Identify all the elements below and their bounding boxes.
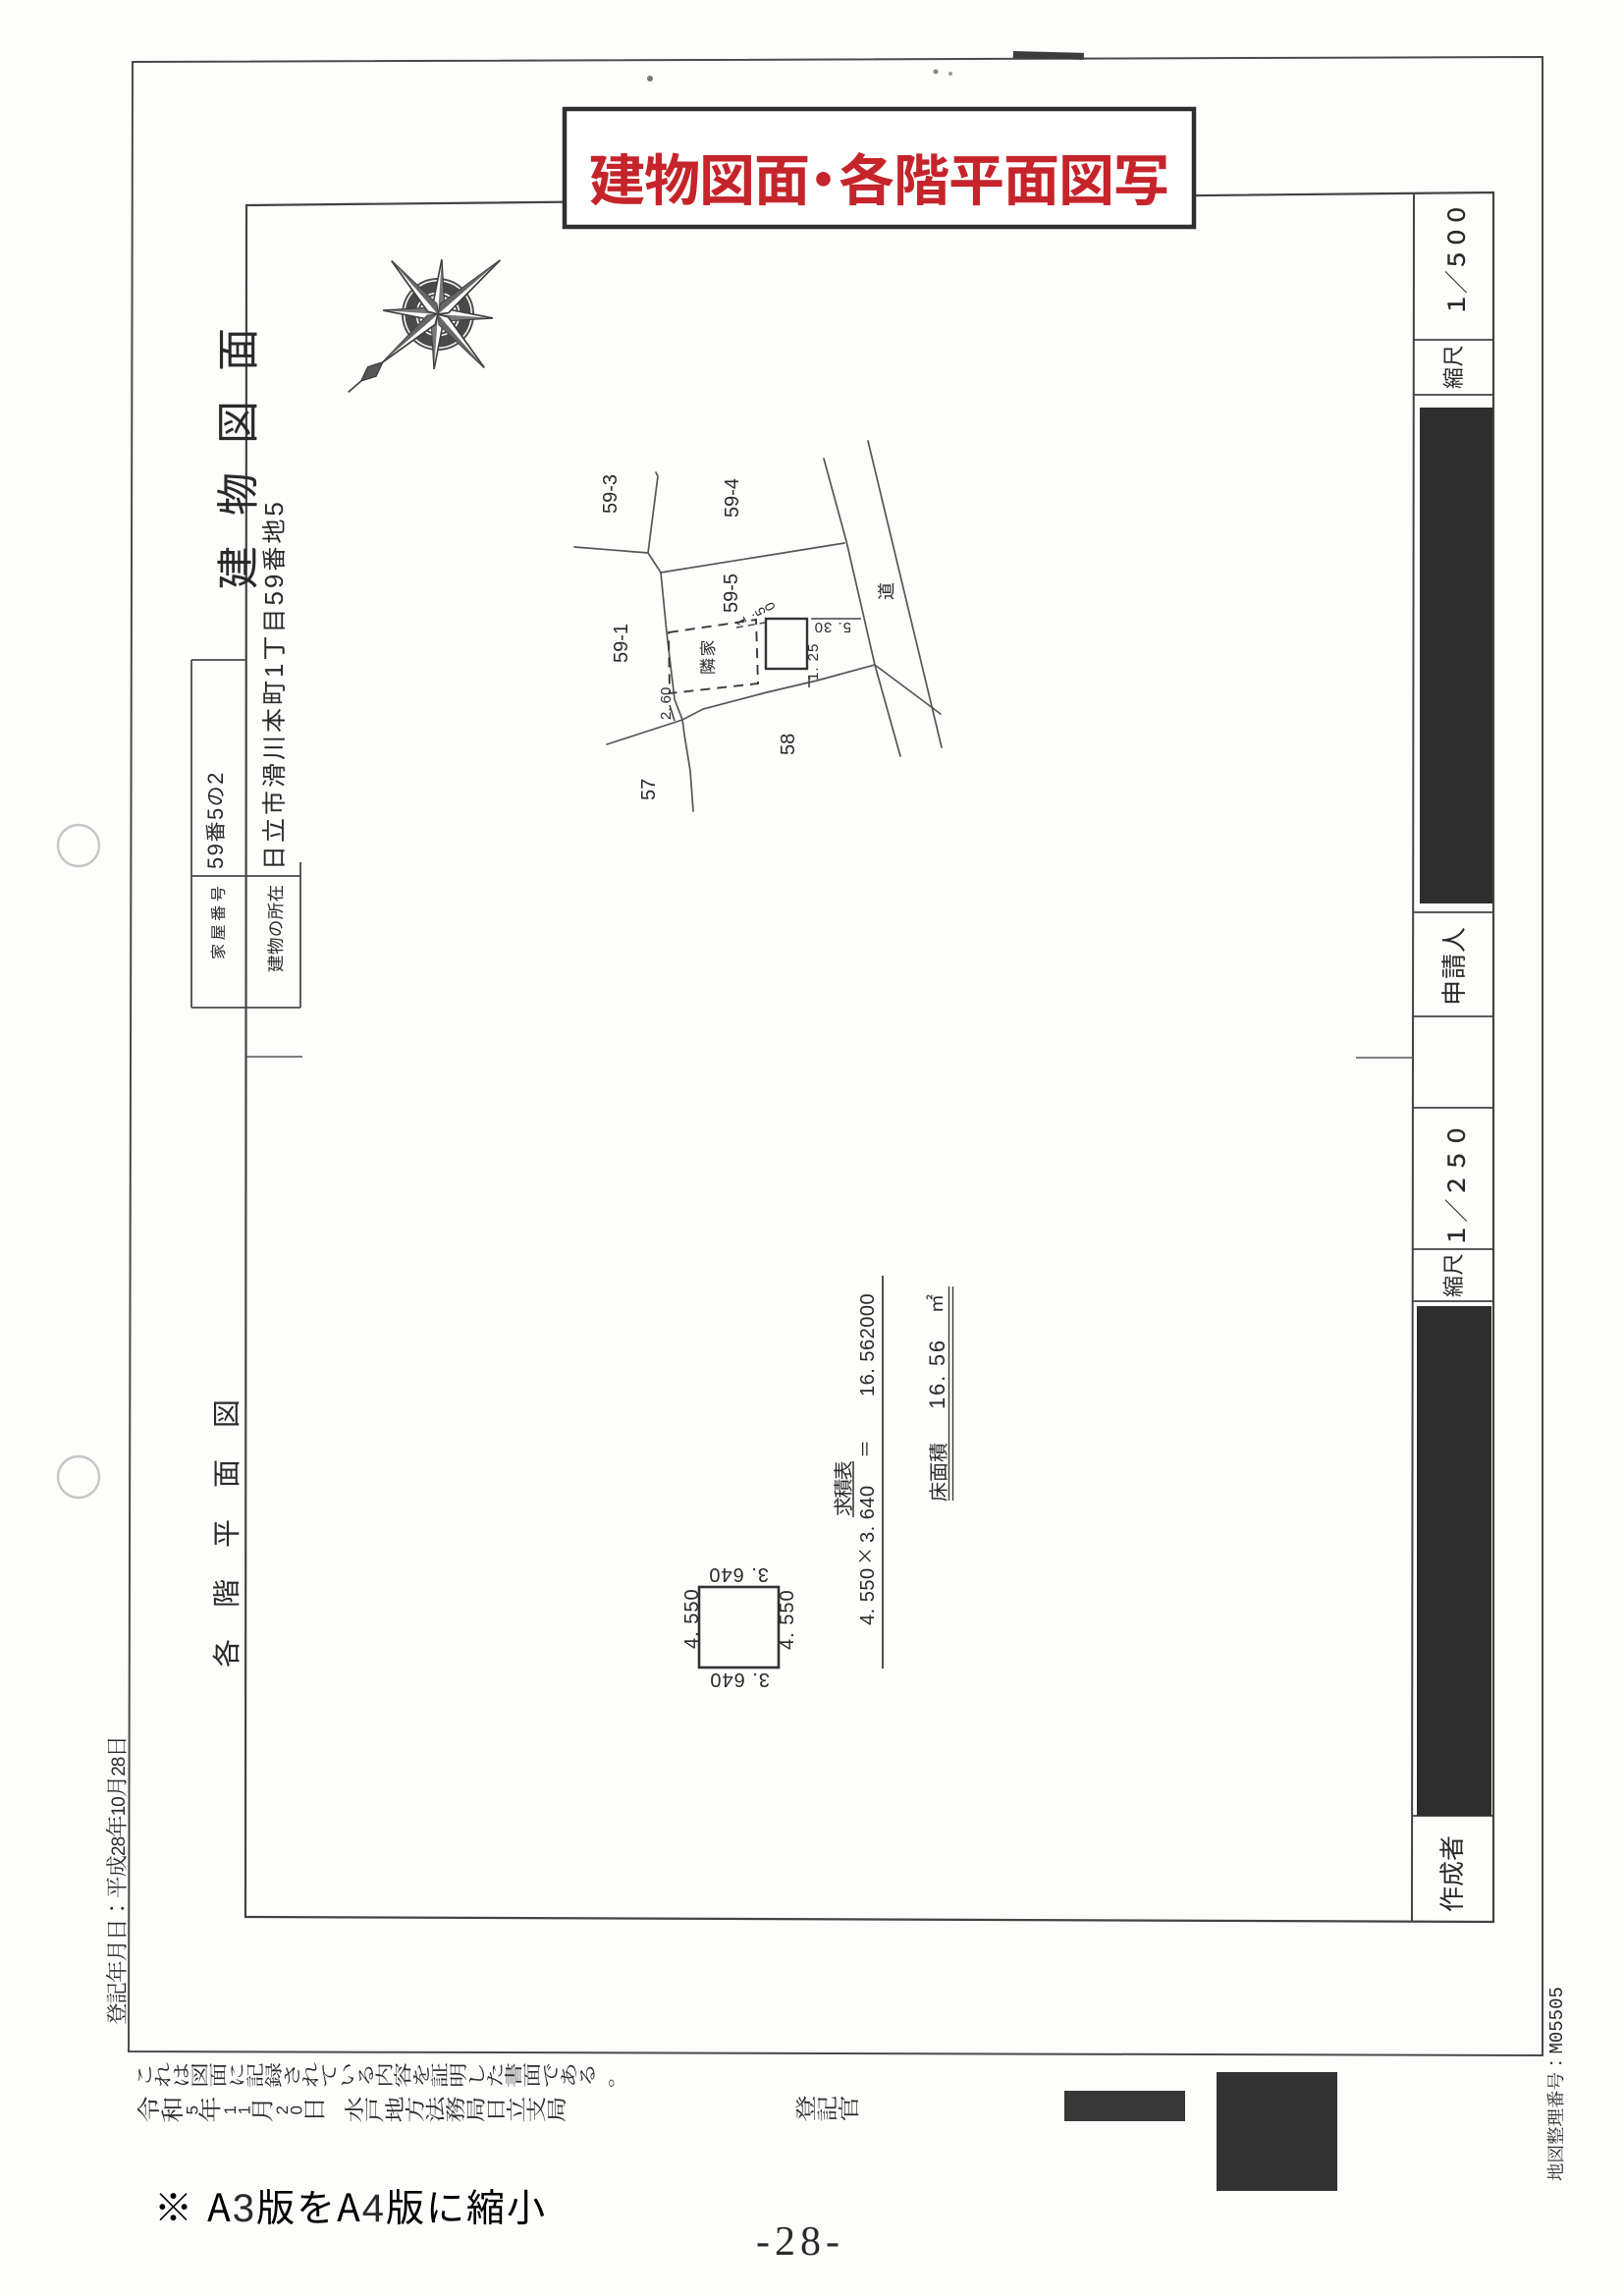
svg-text:4. 550: 4. 550	[777, 1589, 798, 1650]
svg-text:59-5: 59-5	[721, 574, 742, 613]
svg-text:3. 640: 3. 640	[709, 1668, 770, 1690]
svg-text:2. 60: 2. 60	[658, 687, 675, 720]
svg-text:5: 5	[1546, 2009, 1568, 2020]
svg-text:5: 5	[203, 857, 228, 869]
svg-text:0: 0	[761, 600, 779, 614]
svg-text:8: 8	[109, 1836, 130, 1847]
svg-text:57: 57	[638, 779, 660, 800]
svg-text:5: 5	[203, 808, 228, 820]
svg-text:59-3: 59-3	[600, 474, 622, 514]
svg-text:3: 3	[233, 2187, 254, 2230]
svg-text:16. 562000: 16. 562000	[857, 1293, 879, 1396]
svg-text:1: 1	[235, 2105, 253, 2114]
svg-text:0: 0	[1546, 1997, 1568, 2008]
svg-text:9: 9	[259, 574, 289, 588]
svg-text:5: 5	[259, 502, 289, 516]
svg-text:0: 0	[109, 1796, 130, 1807]
svg-text:5. 30: 5. 30	[814, 619, 851, 635]
svg-text:16. 56: 16. 56	[925, 1339, 949, 1409]
svg-text:2: 2	[203, 773, 228, 785]
svg-text:58: 58	[778, 734, 799, 755]
svg-text:5: 5	[183, 2105, 201, 2114]
svg-text:1. 25: 1. 25	[805, 643, 822, 681]
svg-text:9: 9	[203, 844, 228, 855]
svg-text:3. 640: 3. 640	[857, 1485, 879, 1543]
svg-text:M: M	[1546, 2043, 1568, 2053]
svg-text:59-1: 59-1	[611, 624, 632, 663]
svg-text:5: 5	[259, 591, 289, 605]
svg-text:5: 5	[1546, 2020, 1568, 2031]
svg-text:4. 550: 4. 550	[681, 1588, 703, 1649]
svg-text:-28-: -28-	[756, 2219, 844, 2265]
svg-text:1: 1	[259, 664, 289, 678]
svg-text:4. 550: 4. 550	[857, 1567, 879, 1625]
svg-text:59-4: 59-4	[722, 478, 743, 518]
svg-text:3. 640: 3. 640	[708, 1563, 769, 1585]
svg-text:8: 8	[109, 1757, 130, 1768]
svg-text:5: 5	[1546, 1987, 1568, 1997]
svg-text:0: 0	[1546, 2032, 1568, 2043]
svg-text:4: 4	[362, 2187, 384, 2230]
svg-text:0: 0	[287, 2105, 305, 2114]
